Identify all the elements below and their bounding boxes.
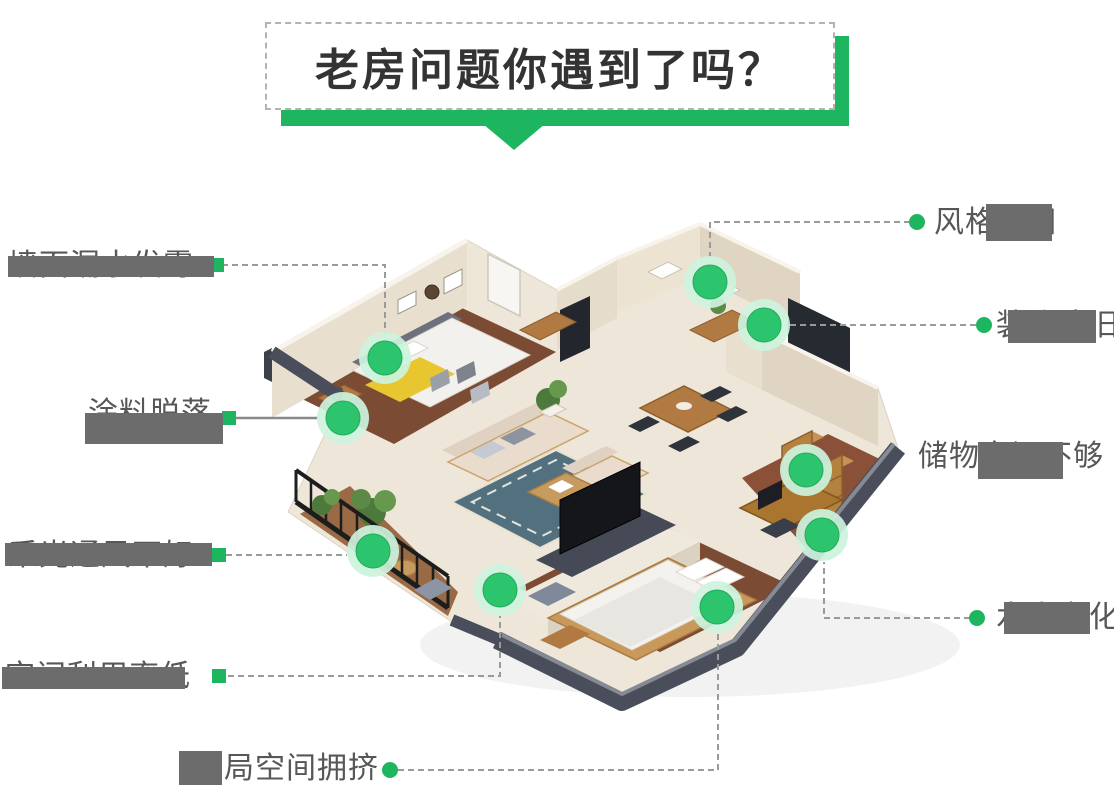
marker-dot-icon xyxy=(976,317,992,333)
redaction-box xyxy=(978,442,1063,479)
marker-square-icon xyxy=(222,411,236,425)
problem-marker-icon xyxy=(780,444,832,496)
marker-dot-icon xyxy=(382,762,398,778)
marker-dot-icon xyxy=(909,214,925,230)
problem-marker-icon xyxy=(359,332,411,384)
redaction-box xyxy=(1004,602,1090,634)
redaction-box xyxy=(986,204,1052,241)
redaction-box xyxy=(85,413,223,444)
redaction-box xyxy=(8,256,214,277)
redaction-box xyxy=(1008,310,1096,343)
redaction-box xyxy=(179,751,222,785)
problem-marker-icon xyxy=(796,509,848,561)
redaction-box xyxy=(2,667,185,689)
marker-dot-icon xyxy=(969,610,985,626)
marker-square-icon xyxy=(212,548,226,562)
redaction-box xyxy=(5,543,212,566)
page: { "title": { "text": "老房问题你遇到了吗？" }, "co… xyxy=(0,0,1114,785)
problem-marker-icon xyxy=(684,256,736,308)
problem-marker-icon xyxy=(347,525,399,577)
problem-marker-icon xyxy=(691,581,743,633)
marker-square-icon xyxy=(212,669,226,683)
problem-marker-icon xyxy=(317,392,369,444)
problem-marker-icon xyxy=(474,564,526,616)
problem-marker-icon xyxy=(738,299,790,351)
